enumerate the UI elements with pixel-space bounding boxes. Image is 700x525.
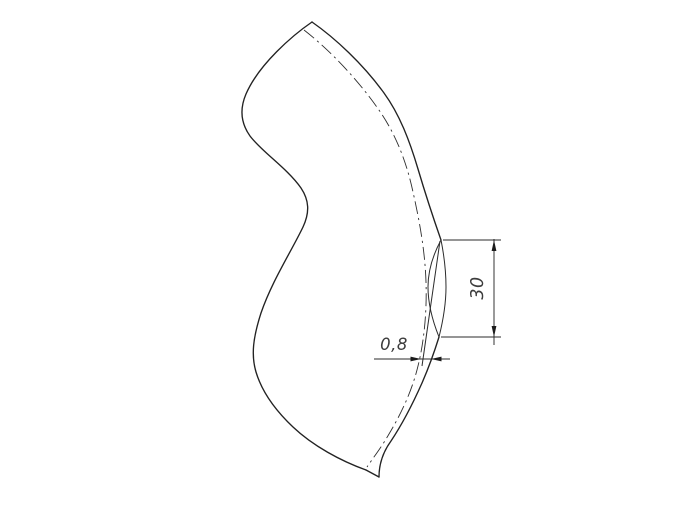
outer-contour-left (242, 22, 366, 470)
drawing-sheet: 30 0,8 (0, 0, 700, 525)
end-face-lens-right-arc (439, 240, 446, 337)
dim30-arrow-up (492, 240, 497, 251)
technical-drawing-canvas: 30 0,8 (0, 0, 700, 525)
end-face-lens-left-arc (428, 240, 441, 337)
dim30-arrow-down (492, 326, 497, 337)
bottom-end-edge (366, 470, 379, 477)
outer-contour-right-upper (312, 22, 441, 240)
dim08-value-label: 0,8 (380, 335, 408, 354)
pipe-centerline (304, 30, 426, 467)
dim30-value-label: 30 (468, 276, 488, 299)
dim08-arrow-right (411, 357, 422, 362)
outer-contour-right-lower (379, 337, 439, 477)
